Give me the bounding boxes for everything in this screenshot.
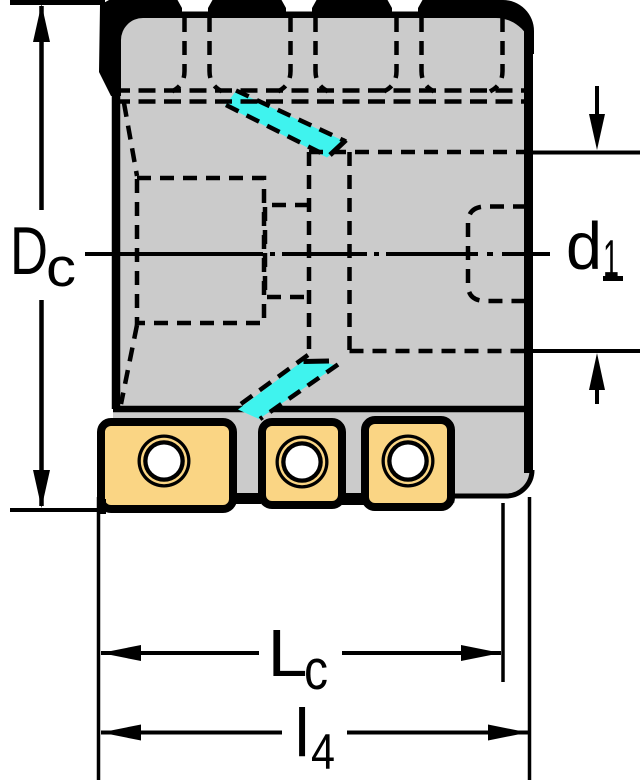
svg-text:D: D <box>10 213 48 289</box>
svg-text:c: c <box>46 236 76 298</box>
svg-text:4: 4 <box>311 724 335 780</box>
svg-text:L: L <box>268 616 308 691</box>
svg-text:c: c <box>304 638 328 702</box>
svg-text:l: l <box>295 695 310 771</box>
svg-text:d: d <box>566 209 602 284</box>
